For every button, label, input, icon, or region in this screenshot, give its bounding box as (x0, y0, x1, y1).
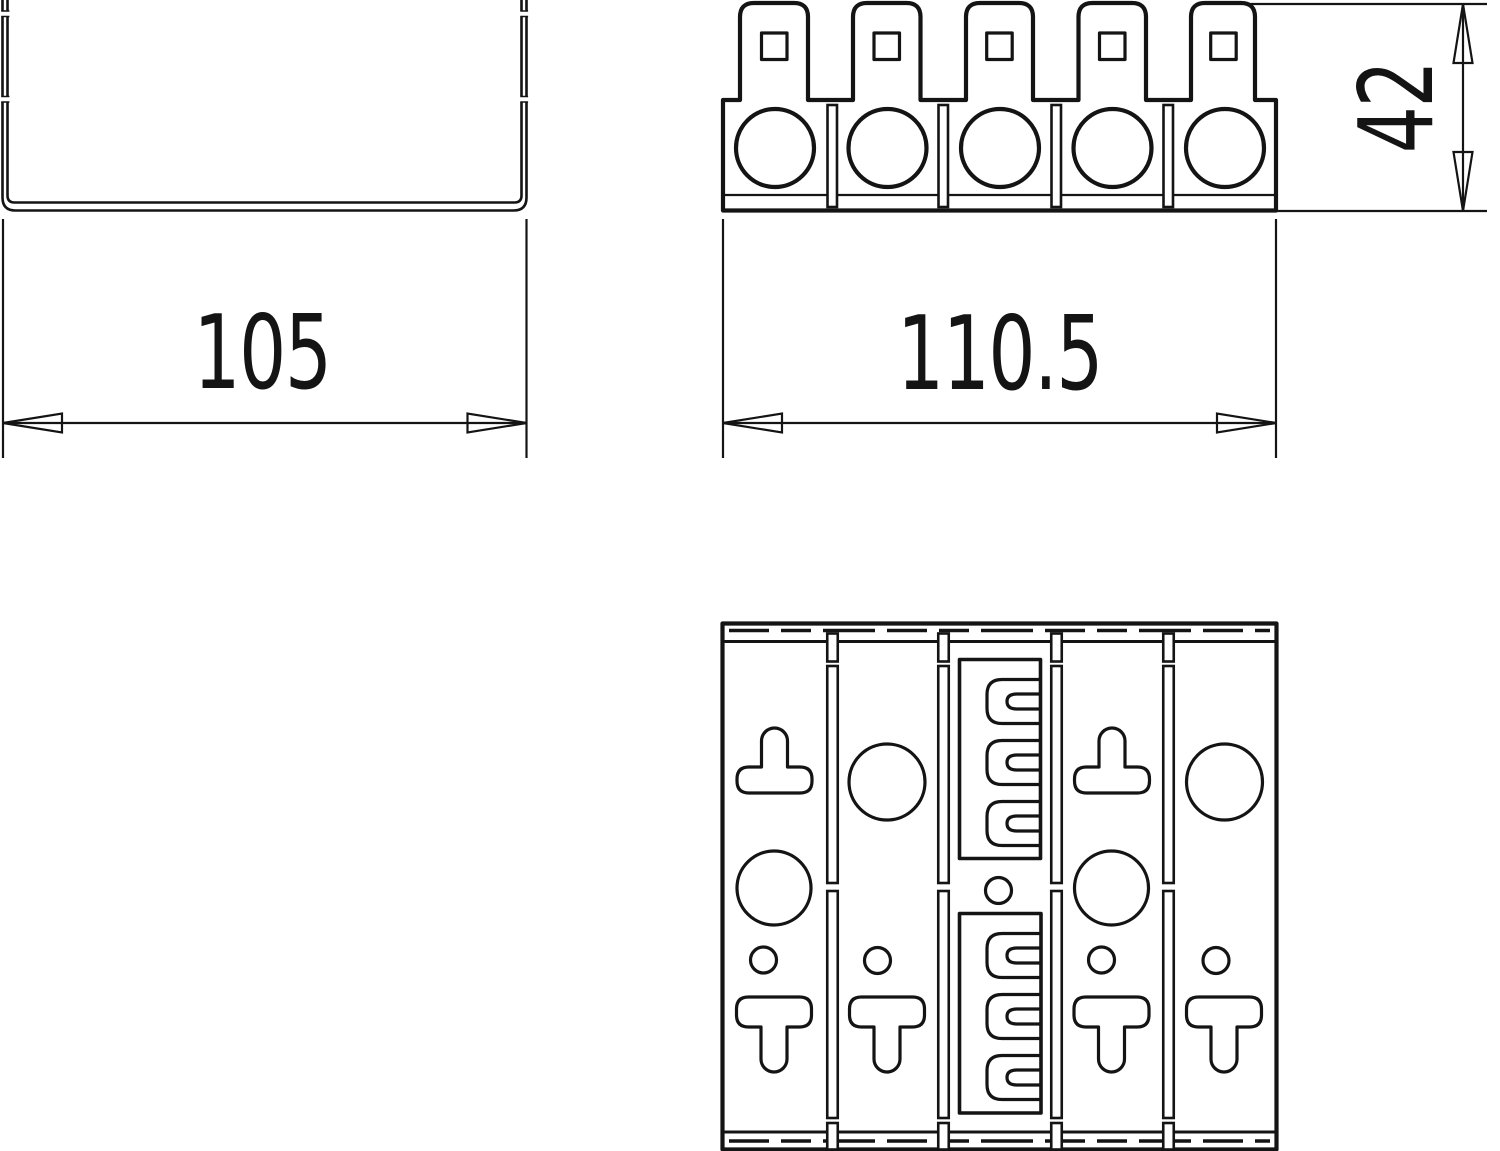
t-slot-down (850, 997, 925, 1072)
module-column-5 (1187, 744, 1263, 1072)
divider-slot (1052, 105, 1062, 207)
tab-square-hole (874, 33, 900, 60)
drawing-canvas: 105 (0, 0, 1500, 1151)
technical-drawing: 105 (0, 0, 1500, 1151)
divider-slot (939, 105, 949, 207)
divider-slot (1164, 105, 1174, 207)
small-hole (1203, 948, 1229, 974)
terminal-divider-slots (828, 105, 1174, 207)
small-hole (865, 948, 891, 974)
small-hole (751, 947, 777, 973)
terminal-block-plan-view (723, 624, 1277, 1150)
tab-square-hole (762, 33, 788, 60)
t-slot-down (1187, 997, 1262, 1072)
module-column-1 (737, 728, 813, 1072)
screw-hole (849, 109, 927, 187)
screw-hole (736, 109, 814, 187)
large-hole (1075, 851, 1149, 925)
t-slot-down (737, 997, 812, 1072)
meander-hooks-upper (987, 680, 1040, 846)
u-channel-outer-contour (3, 0, 527, 211)
meander-hooks-lower (987, 934, 1040, 1100)
terminal-screw-holes (736, 109, 1264, 187)
large-hole (849, 744, 925, 820)
screw-hole (961, 109, 1039, 187)
wall-break-marks (1, 11, 529, 102)
large-hole (1187, 744, 1263, 820)
t-slot-down (1074, 997, 1149, 1072)
module-column-2 (849, 744, 925, 1072)
screw-hole (1186, 109, 1264, 187)
plan-outline (723, 624, 1277, 1150)
module-separator (1163, 634, 1174, 1150)
screw-hole (1074, 109, 1152, 187)
module-separator (1051, 634, 1062, 1150)
dimension-channel-width: 105 (3, 219, 527, 458)
terminal-block-front-view: 110.5 42 (723, 3, 1487, 458)
dim-label-block-height: 42 (1338, 62, 1457, 153)
u-channel-section-view: 105 (1, 0, 529, 458)
module-separators (827, 634, 1174, 1150)
small-hole (986, 878, 1012, 904)
tab-square-hole (1100, 33, 1126, 60)
tab-square-hole (1211, 33, 1237, 60)
dim-label-channel-width: 105 (193, 294, 330, 413)
dimension-block-height: 42 (1244, 4, 1487, 211)
terminal-tab-holes (762, 33, 1237, 60)
module-column-3 (960, 660, 1042, 1114)
large-hole (737, 851, 811, 925)
dim-label-block-width: 110.5 (897, 295, 1102, 414)
module-column-4 (1074, 728, 1150, 1072)
t-slot-up (1075, 728, 1150, 793)
module-separator (827, 634, 838, 1150)
dimension-block-width: 110.5 (723, 219, 1276, 458)
u-channel-inner-contour (8, 0, 522, 203)
divider-slot (828, 105, 838, 207)
t-slot-up (737, 728, 812, 793)
small-hole (1089, 947, 1115, 973)
tab-square-hole (987, 33, 1013, 60)
meander-block-lower (960, 914, 1042, 1114)
meander-block-upper (960, 660, 1041, 859)
module-separator (938, 634, 949, 1150)
